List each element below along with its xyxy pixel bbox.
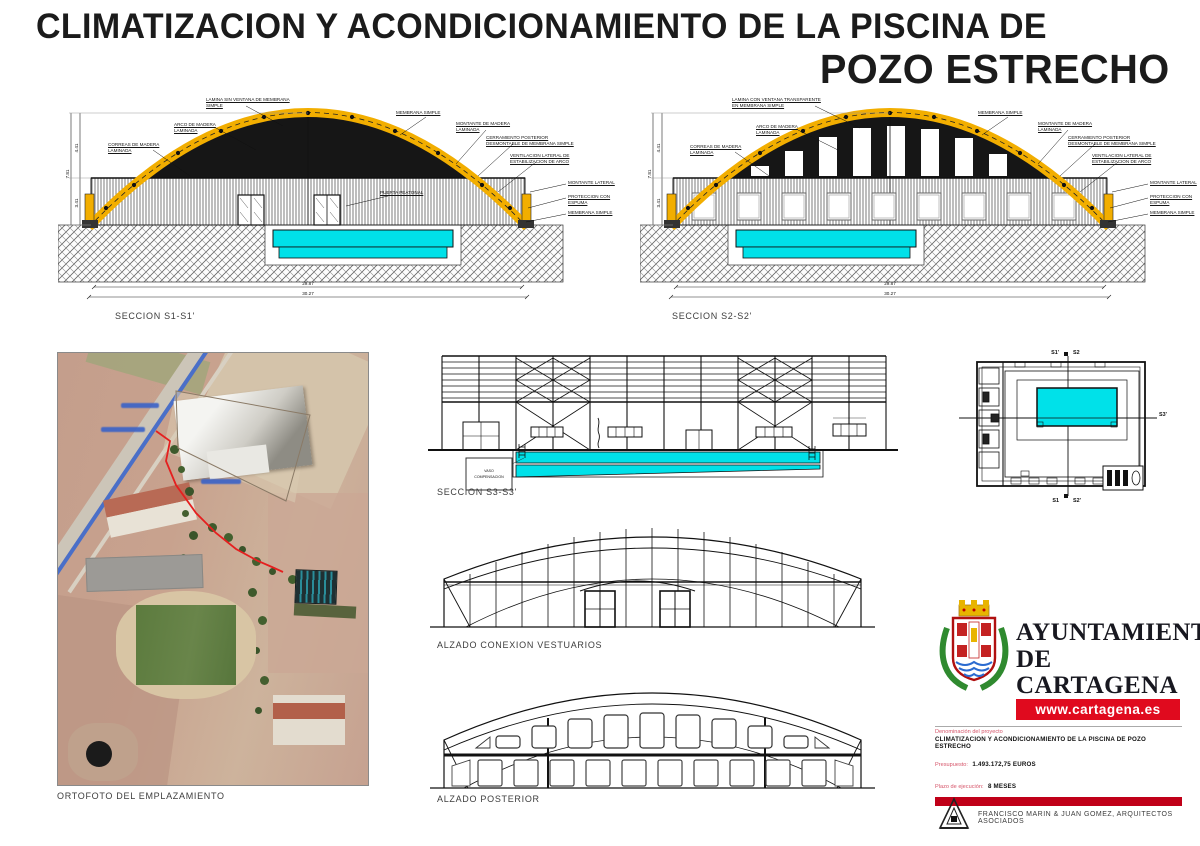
plot-fence	[176, 391, 310, 501]
website-bar[interactable]: www.cartagena.es	[1016, 699, 1180, 720]
alzado-vestuarios-drawing	[430, 505, 880, 640]
pool-water-lower	[279, 247, 447, 258]
callout-membrana-2: MEMBRANA SIMPLE	[1150, 210, 1200, 216]
dim-height-total: 7.81	[65, 169, 70, 178]
callout-membrana: MEMBRANA SIMPLE	[396, 110, 476, 116]
callout-ventilacion: VENTILACION LATERAL DE ESTABILIZACION DE…	[1092, 153, 1176, 164]
callout-montante-lateral: MONTANTE LATERAL	[568, 180, 630, 186]
pool-longitudinal	[513, 444, 823, 477]
callout-membrana: MEMBRANA SIMPLE	[978, 110, 1058, 116]
project-presupuesto-label: Presupuesto:	[935, 762, 968, 768]
tank-label-line2: COMPENSACION	[474, 475, 504, 479]
upper-windows	[476, 713, 829, 748]
project-info-block: Denominación del proyecto CLIMATIZACION …	[935, 726, 1182, 806]
callout-proteccion: PROTECCION CON ESPUMA	[568, 194, 630, 205]
callout-correas: CORREAS DE MADERA LAMINADA	[690, 144, 752, 155]
route-line	[156, 431, 283, 572]
callout-arco: ARCO DE MADERA LAMINADA	[174, 122, 232, 133]
callout-montante: MONTANTE DE MADERA LAMINADA	[456, 121, 522, 132]
dim-height-lower: 3.41	[656, 198, 661, 207]
dim-span-outer: 30.27	[302, 291, 314, 296]
project-denominacion-value: CLIMATIZACION Y ACONDICIONAMIENTO DE LA …	[935, 736, 1182, 750]
alzado-posterior-drawing	[430, 658, 880, 798]
plan-label-right: S3'	[1159, 412, 1167, 418]
callout-puerta: PUERTA PEATONAL	[380, 190, 440, 196]
road-label-smudge	[121, 403, 159, 408]
callout-ventilacion: VENTILACION LATERAL DE ESTABILIZACION DE…	[510, 153, 594, 164]
dim-height-upper: 4.41	[74, 143, 79, 152]
section-s1-drawing: 29.87 30.27 7.81 4.41 3.41 LAMINA SIN VE…	[58, 96, 633, 311]
tank-box: VASO COMPENSACION	[466, 458, 524, 490]
entrance-doors	[585, 591, 690, 627]
section-s2-drawing: 29.87 30.27 7.81 4.41 3.41 LAMINA CON VE…	[640, 96, 1200, 311]
callout-cerramiento: CERRAMIENTO POSTERIOR DESMONTABLE DE MEM…	[1068, 135, 1160, 146]
lower-windows	[452, 760, 853, 786]
pool-plan	[1037, 388, 1117, 426]
crest-crown	[959, 600, 989, 616]
callout-proteccion: PROTECCION CON ESPUMA	[1150, 194, 1200, 205]
plan-label-top-b: S2	[1073, 350, 1080, 356]
section-s3-svg: VASO COMPENSACION	[428, 346, 906, 504]
caption-alzado-vestuarios: ALZADO CONEXION VESTUARIOS	[437, 640, 602, 650]
dim-span-outer: 30.27	[884, 291, 896, 296]
org-name-line2: DE CARTAGENA	[1016, 647, 1200, 699]
callout-montante-lateral: MONTANTE LATERAL	[1150, 180, 1200, 186]
sketch-arrow	[598, 418, 599, 448]
road-label-smudge	[201, 479, 241, 484]
callout-lamina: LAMINA SIN VENTANA DE MEMBRANA SIMPLE	[206, 97, 290, 108]
project-denominacion-label: Denominación del proyecto	[935, 729, 1182, 735]
pool-water-upper	[273, 230, 453, 247]
section-s1-svg: 29.87 30.27 7.81 4.41 3.41	[58, 96, 633, 311]
plan-label-bottom-b: S2'	[1073, 498, 1081, 503]
dim-span-inner: 29.87	[884, 281, 896, 286]
door-left	[238, 195, 264, 225]
tank-label-line1: VASO	[484, 469, 494, 473]
door-right	[314, 195, 340, 225]
architects-credit: FRANCISCO MARIN & JUAN GOMEZ, ARQUITECTO…	[978, 811, 1200, 825]
caption-seccion-s2: SECCION S2-S2'	[672, 311, 752, 321]
alzado-posterior-svg	[430, 658, 880, 798]
entrance-stalls	[1103, 466, 1143, 490]
caption-seccion-s1: SECCION S1-S1'	[115, 311, 195, 321]
page-subtitle: POZO ESTRECHO	[820, 46, 1170, 93]
callout-cerramiento: CERRAMIENTO POSTERIOR DESMONTABLE DE MEM…	[486, 135, 578, 146]
pool-water-upper	[736, 230, 916, 247]
caption-seccion-s3: SECCION S3-S3'	[437, 487, 517, 497]
key-plan-drawing: S1' S2 S3' S1 S2'	[955, 348, 1170, 503]
project-plazo-label: Plazo de ejecución:	[935, 784, 984, 790]
org-name-line1: AYUNTAMIENTO	[1016, 620, 1200, 646]
architects-logo-icon	[938, 797, 970, 831]
caption-ortofoto: ORTOFOTO DEL EMPLAZAMIENTO	[57, 791, 225, 801]
pool-water-lower	[743, 247, 910, 258]
roof-structure	[442, 356, 886, 450]
crest-shield	[953, 618, 995, 680]
aerial-overlay	[58, 353, 368, 785]
red-divider-bar	[935, 797, 1182, 806]
ortofoto-aerial-photo	[57, 352, 369, 786]
cartagena-crest-icon	[935, 598, 1013, 696]
callout-arco: ARCO DE MADERA LAMINADA	[756, 124, 814, 135]
mullions	[470, 528, 834, 627]
page-title: CLIMATIZACION Y ACONDICIONAMIENTO DE LA …	[36, 7, 1047, 47]
callout-lamina: LAMINA CON VENTANA TRANSPARENTE EN MEMBR…	[732, 97, 828, 108]
key-plan-svg: S1' S2 S3' S1 S2'	[955, 348, 1170, 503]
changing-rooms	[979, 362, 1003, 486]
project-presupuesto-value: 1.493.172,75 EUROS	[972, 761, 1035, 768]
alzado-vestuarios-svg	[430, 505, 880, 640]
dim-span-inner: 29.87	[302, 281, 314, 286]
wall-windows	[692, 193, 1076, 220]
dim-height-lower: 3.41	[74, 198, 79, 207]
dim-height-total: 7.81	[647, 169, 652, 178]
callout-correas: CORREAS DE MADERA LAMINADA	[108, 142, 170, 153]
callout-membrana-2: MEMBRANA SIMPLE	[568, 210, 630, 216]
caption-alzado-posterior: ALZADO POSTERIOR	[437, 794, 540, 804]
section-s2-svg: 29.87 30.27 7.81 4.41 3.41	[640, 96, 1200, 311]
plan-label-top-a: S1'	[1051, 350, 1059, 356]
project-plazo-value: 8 MESES	[988, 783, 1016, 790]
section-s3-drawing: VASO COMPENSACION	[428, 346, 906, 504]
plan-label-bottom-a: S1	[1052, 498, 1059, 503]
road-label-smudge	[101, 427, 145, 432]
dim-height-upper: 4.41	[656, 143, 661, 152]
callout-montante: MONTANTE DE MADERA LAMINADA	[1038, 121, 1104, 132]
